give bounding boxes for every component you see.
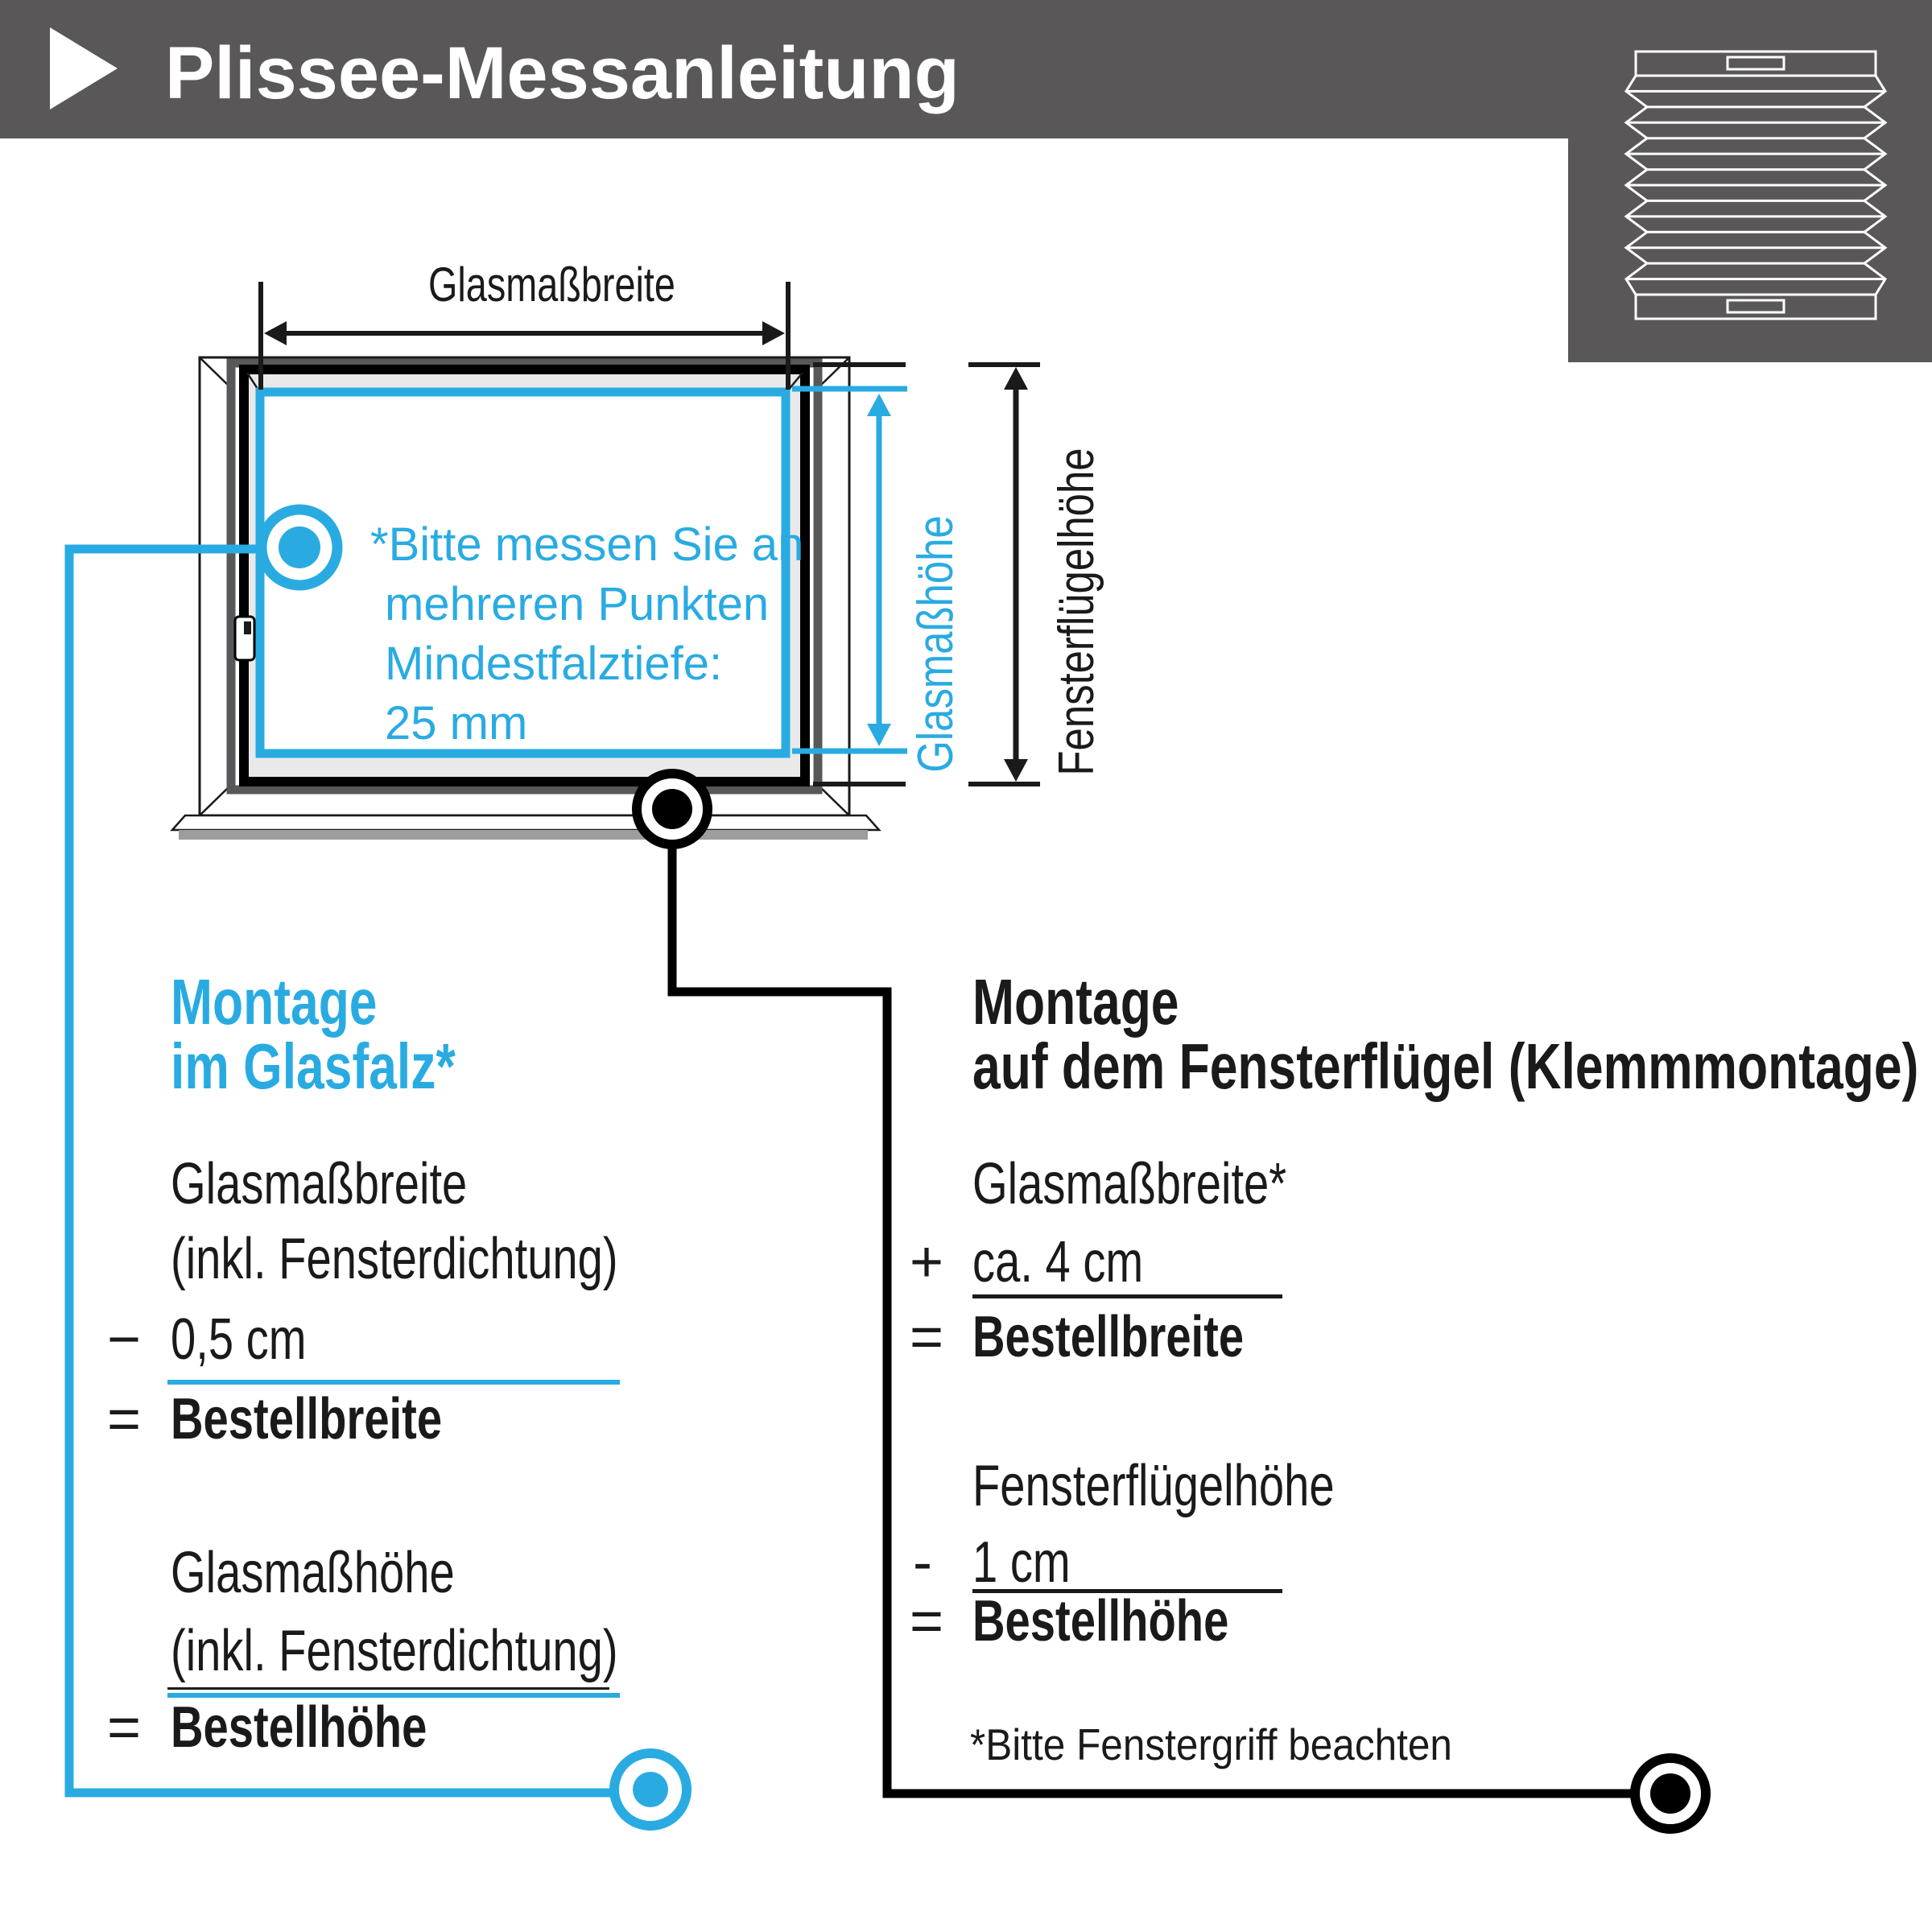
measuring-note: *Bitte messen Sie an mehreren Punkten Mi… bbox=[370, 515, 803, 753]
right-heading-line1: Montage bbox=[972, 970, 1918, 1034]
window-handle-icon bbox=[235, 617, 254, 660]
right-height-result: Bestellhöhe bbox=[972, 1592, 1228, 1650]
left-heading-line2: im Glasfalz* bbox=[171, 1034, 456, 1099]
left-height-line1: Glasmaßhöhe bbox=[171, 1544, 455, 1602]
left-width-sum-rule bbox=[167, 1380, 620, 1385]
right-width-operator-plus: + bbox=[910, 1233, 943, 1291]
sash-measure-point-marker bbox=[637, 774, 708, 844]
measuring-note-line: Mindestfalztiefe: bbox=[385, 634, 803, 694]
right-section-heading: Montage auf dem Fensterflügel (Klemmmont… bbox=[972, 970, 1918, 1099]
right-height-operator-equals: = bbox=[910, 1592, 943, 1650]
measuring-note-line: mehreren Punkten bbox=[385, 575, 803, 634]
right-heading-line2: auf dem Fensterflügel (Klemmmontage) bbox=[972, 1034, 1918, 1099]
left-width-operator-minus: − bbox=[107, 1311, 141, 1368]
glass-measure-point-marker bbox=[262, 510, 337, 585]
pleated-blind-icon bbox=[1626, 52, 1885, 319]
right-width-result: Bestellbreite bbox=[972, 1308, 1244, 1366]
right-section-footnote: *Bitte Fenstergriff beachten bbox=[970, 1723, 1452, 1767]
glass-height-label: Glasmaßhöhe bbox=[911, 515, 961, 772]
left-heading-line1: Montage bbox=[171, 970, 456, 1034]
measuring-note-line: 25 mm bbox=[385, 694, 803, 753]
right-height-line1: Fensterflügelhöhe bbox=[972, 1457, 1335, 1515]
measuring-note-line: *Bitte messen Sie an bbox=[385, 515, 803, 575]
left-width-operator-equals: = bbox=[107, 1390, 141, 1448]
blue-endpoint-marker bbox=[614, 1753, 687, 1826]
window-sill bbox=[172, 815, 879, 840]
left-height-line2: (inkl. Fensterdichtung) bbox=[171, 1622, 618, 1680]
black-endpoint-marker bbox=[1635, 1758, 1706, 1829]
right-height-line2: 1 cm bbox=[972, 1534, 1071, 1591]
left-height-result: Bestellhöhe bbox=[171, 1699, 427, 1757]
right-width-line2: ca. 4 cm bbox=[972, 1233, 1143, 1291]
left-width-result: Bestellbreite bbox=[171, 1390, 442, 1448]
left-height-operator-equals: = bbox=[107, 1699, 141, 1757]
left-width-line2: (inkl. Fensterdichtung) bbox=[171, 1230, 618, 1288]
right-width-line1: Glasmaßbreite* bbox=[972, 1155, 1286, 1213]
left-height-sum-rule-thin bbox=[167, 1687, 609, 1690]
sash-height-label: Fensterflügelhöhe bbox=[1052, 448, 1102, 775]
left-section-heading: Montage im Glasfalz* bbox=[171, 970, 456, 1099]
right-width-sum-rule bbox=[972, 1294, 1282, 1298]
right-width-operator-equals: = bbox=[910, 1308, 943, 1366]
width-dimension-label: Glasmaßbreite bbox=[428, 261, 675, 309]
right-height-operator-minus: - bbox=[913, 1534, 932, 1591]
left-width-line1: Glasmaßbreite bbox=[171, 1155, 467, 1213]
left-width-line3: 0,5 cm bbox=[171, 1311, 307, 1368]
